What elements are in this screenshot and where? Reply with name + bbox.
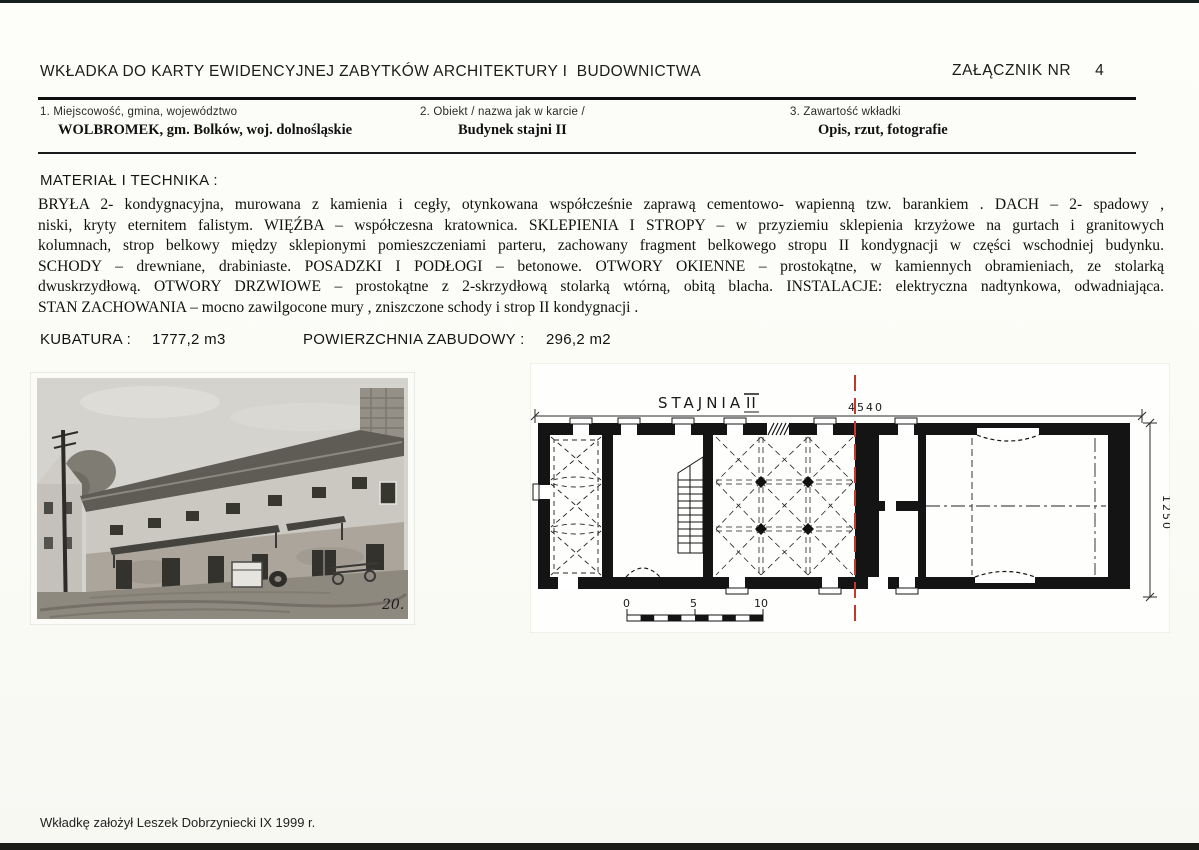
paragraph-line: STAN ZACHOWANIA – mocno zawilgocone mury…: [38, 298, 1164, 319]
scale-0: 0: [623, 597, 630, 610]
attachment-ref: ZAŁĄCZNIK NR4: [952, 62, 1104, 80]
scanned-record-card: WKŁADKA DO KARTY EWIDENCYJNEJ ZABYTKÓW A…: [0, 0, 1199, 850]
photo-image: 20.: [37, 378, 408, 619]
material-paragraph: BRYŁA 2- kondygnacyjna, murowana z kamie…: [38, 195, 1164, 319]
fields-rule: [38, 152, 1136, 154]
field-object: 2. Obiekt / nazwa jak w karcie / Budynek…: [420, 106, 780, 139]
photo-svg: 20.: [30, 372, 415, 625]
paragraph-line: niski, kryty eternitem falistym. WIĘŹBA …: [38, 216, 1164, 237]
paragraph-line: kolumnach, strop belkowy między sklepion…: [38, 236, 1164, 257]
field-object-value: Budynek stajni II: [458, 122, 780, 139]
scale-5: 5: [690, 597, 697, 610]
plan-title: STAJNIA: [658, 394, 744, 412]
paragraph-line: SCHODY – drewniane, drabiniaste. POSADZK…: [38, 257, 1164, 278]
powierzchnia-label: POWIERZCHNIA ZABUDOWY :: [303, 331, 525, 348]
footer-note: Wkładkę założył Leszek Dobrzyniecki IX 1…: [40, 815, 315, 830]
kubatura-label: KUBATURA :: [40, 331, 131, 348]
plan-title-numeral: II: [746, 394, 757, 412]
container-box: [232, 562, 262, 587]
left-opening: [538, 485, 550, 499]
header-rule: [38, 97, 1136, 100]
paragraph-line: dwuskrzydłową. OTWORY DRZWIOWE – prostok…: [38, 277, 1164, 298]
field-contents-value: Opis, rzut, fotografie: [818, 122, 1130, 139]
field-location: 1. Miejscowość, gmina, województwo WOLBR…: [40, 106, 410, 139]
dim-length-label: 4540: [848, 401, 884, 414]
scale-10: 10: [754, 597, 768, 610]
material-heading: MATERIAŁ I TECHNIKA :: [40, 172, 218, 189]
field-location-label: 1. Miejscowość, gmina, województwo: [40, 106, 410, 118]
field-contents: 3. Zawartość wkładki Opis, rzut, fotogra…: [790, 106, 1130, 139]
attachment-label: ZAŁĄCZNIK NR: [952, 62, 1071, 79]
dim-width-label: 1250: [1160, 495, 1170, 531]
field-object-label: 2. Obiekt / nazwa jak w karcie /: [420, 106, 780, 118]
scan-edge-bottom: [0, 843, 1199, 850]
scan-edge-top: [0, 0, 1199, 3]
document-title: WKŁADKA DO KARTY EWIDENCYJNEJ ZABYTKÓW A…: [40, 63, 701, 81]
field-contents-label: 3. Zawartość wkładki: [790, 106, 1130, 118]
building-photograph: 20.: [30, 372, 415, 625]
plan-svg: STAJNIA II 4540 1250: [530, 363, 1170, 633]
field-location-value: WOLBROMEK, gm. Bolków, woj. dolnośląskie: [58, 122, 410, 139]
kubatura-value: 1777,2 m3: [152, 331, 226, 348]
paragraph-line: BRYŁA 2- kondygnacyjna, murowana z kamie…: [38, 195, 1164, 216]
floor-plan: STAJNIA II 4540 1250: [530, 363, 1170, 633]
powierzchnia-value: 296,2 m2: [546, 331, 611, 348]
attachment-number: 4: [1095, 62, 1104, 79]
photo-number: 20.: [381, 597, 404, 613]
